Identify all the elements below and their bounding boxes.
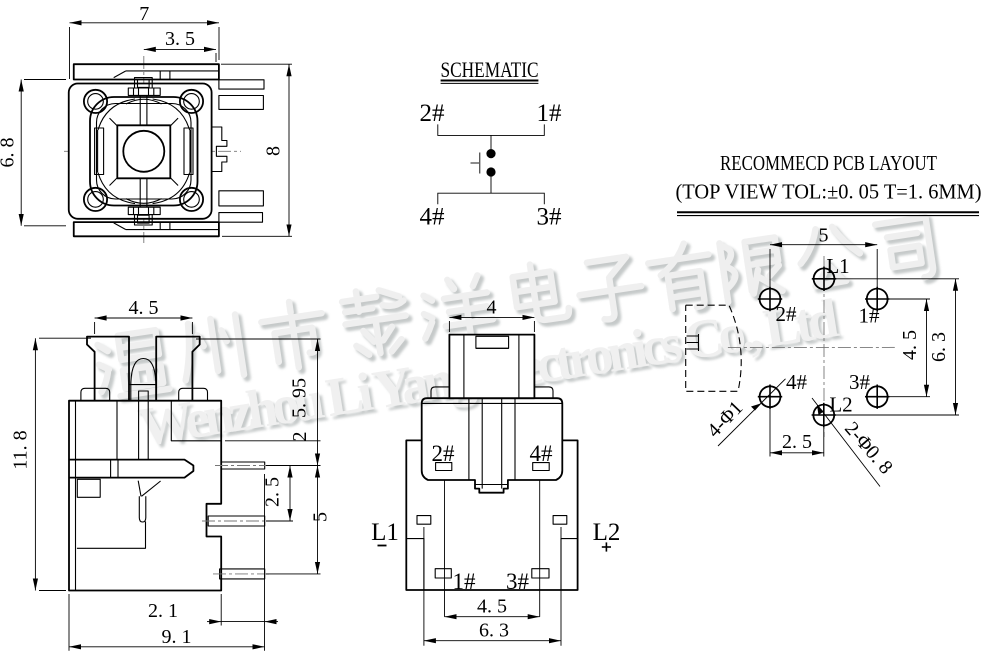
svg-text:2. 5: 2. 5 <box>782 431 812 453</box>
svg-text:8: 8 <box>263 146 285 156</box>
svg-text:RECOMMECD PCB LAYOUT: RECOMMECD PCB LAYOUT <box>720 151 937 175</box>
svg-text:1#: 1# <box>859 304 881 328</box>
svg-text:2#: 2# <box>776 302 798 326</box>
svg-text:L2: L2 <box>829 393 852 417</box>
svg-text:5: 5 <box>819 225 829 247</box>
svg-text:(TOP VIEW TOL:±0. 05 T=1. 6MM): (TOP VIEW TOL:±0. 05 T=1. 6MM) <box>676 180 982 204</box>
svg-text:3#: 3# <box>506 569 530 594</box>
svg-text:4. 5: 4. 5 <box>477 596 507 618</box>
svg-text:6. 8: 6. 8 <box>0 138 19 168</box>
svg-text:L1: L1 <box>371 519 399 546</box>
svg-text:SCHEMATIC: SCHEMATIC <box>441 57 539 82</box>
svg-text:4#: 4# <box>786 370 808 394</box>
svg-text:5: 5 <box>310 512 332 522</box>
svg-text:L1: L1 <box>826 254 849 278</box>
svg-text:3. 5: 3. 5 <box>165 28 195 50</box>
svg-text:4#: 4# <box>420 204 446 231</box>
svg-text:4. 5: 4. 5 <box>899 330 921 360</box>
svg-text:6. 3: 6. 3 <box>479 620 509 642</box>
svg-text:2#: 2# <box>420 100 446 127</box>
svg-text:6. 3: 6. 3 <box>928 332 950 362</box>
svg-text:11. 8: 11. 8 <box>10 430 32 469</box>
svg-text:9. 1: 9. 1 <box>162 626 192 648</box>
svg-text:4. 5: 4. 5 <box>129 297 159 319</box>
svg-text:7: 7 <box>139 3 149 25</box>
svg-text:1#: 1# <box>453 569 477 594</box>
svg-text:5. 95: 5. 95 <box>289 378 311 418</box>
svg-text:2. 1: 2. 1 <box>148 600 178 622</box>
svg-text:4: 4 <box>487 297 497 319</box>
svg-text:3#: 3# <box>849 370 871 394</box>
svg-text:L2: L2 <box>593 519 621 546</box>
svg-text:2: 2 <box>289 432 311 442</box>
svg-text:3#: 3# <box>537 204 563 231</box>
svg-text:1#: 1# <box>537 100 563 127</box>
